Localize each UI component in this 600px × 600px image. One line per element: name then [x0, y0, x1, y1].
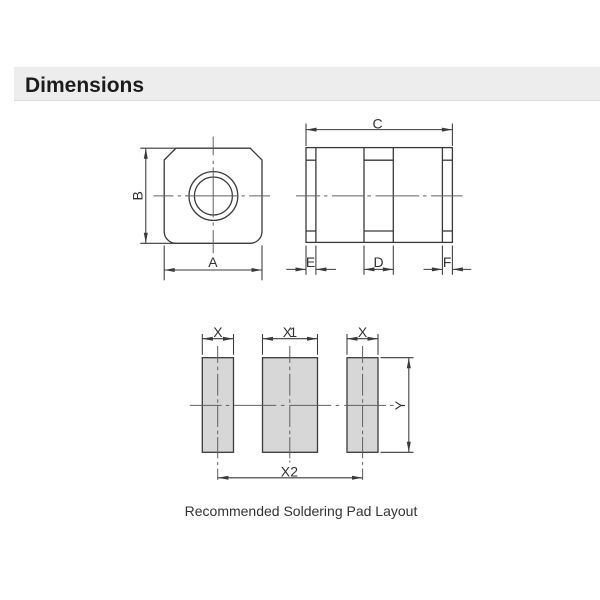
svg-text:X: X [213, 324, 223, 340]
svg-text:X1: X1 [283, 324, 298, 340]
svg-text:F: F [443, 254, 452, 270]
svg-text:C: C [372, 115, 382, 131]
svg-text:B: B [130, 191, 146, 200]
svg-text:X: X [358, 324, 368, 340]
svg-text:X2: X2 [281, 464, 298, 480]
svg-text:E: E [306, 254, 315, 270]
svg-text:Recommended Soldering Pad Layo: Recommended Soldering Pad Layout [185, 503, 418, 519]
svg-text:A: A [208, 254, 218, 270]
svg-text:D: D [374, 254, 384, 270]
svg-text:Y: Y [392, 400, 408, 410]
